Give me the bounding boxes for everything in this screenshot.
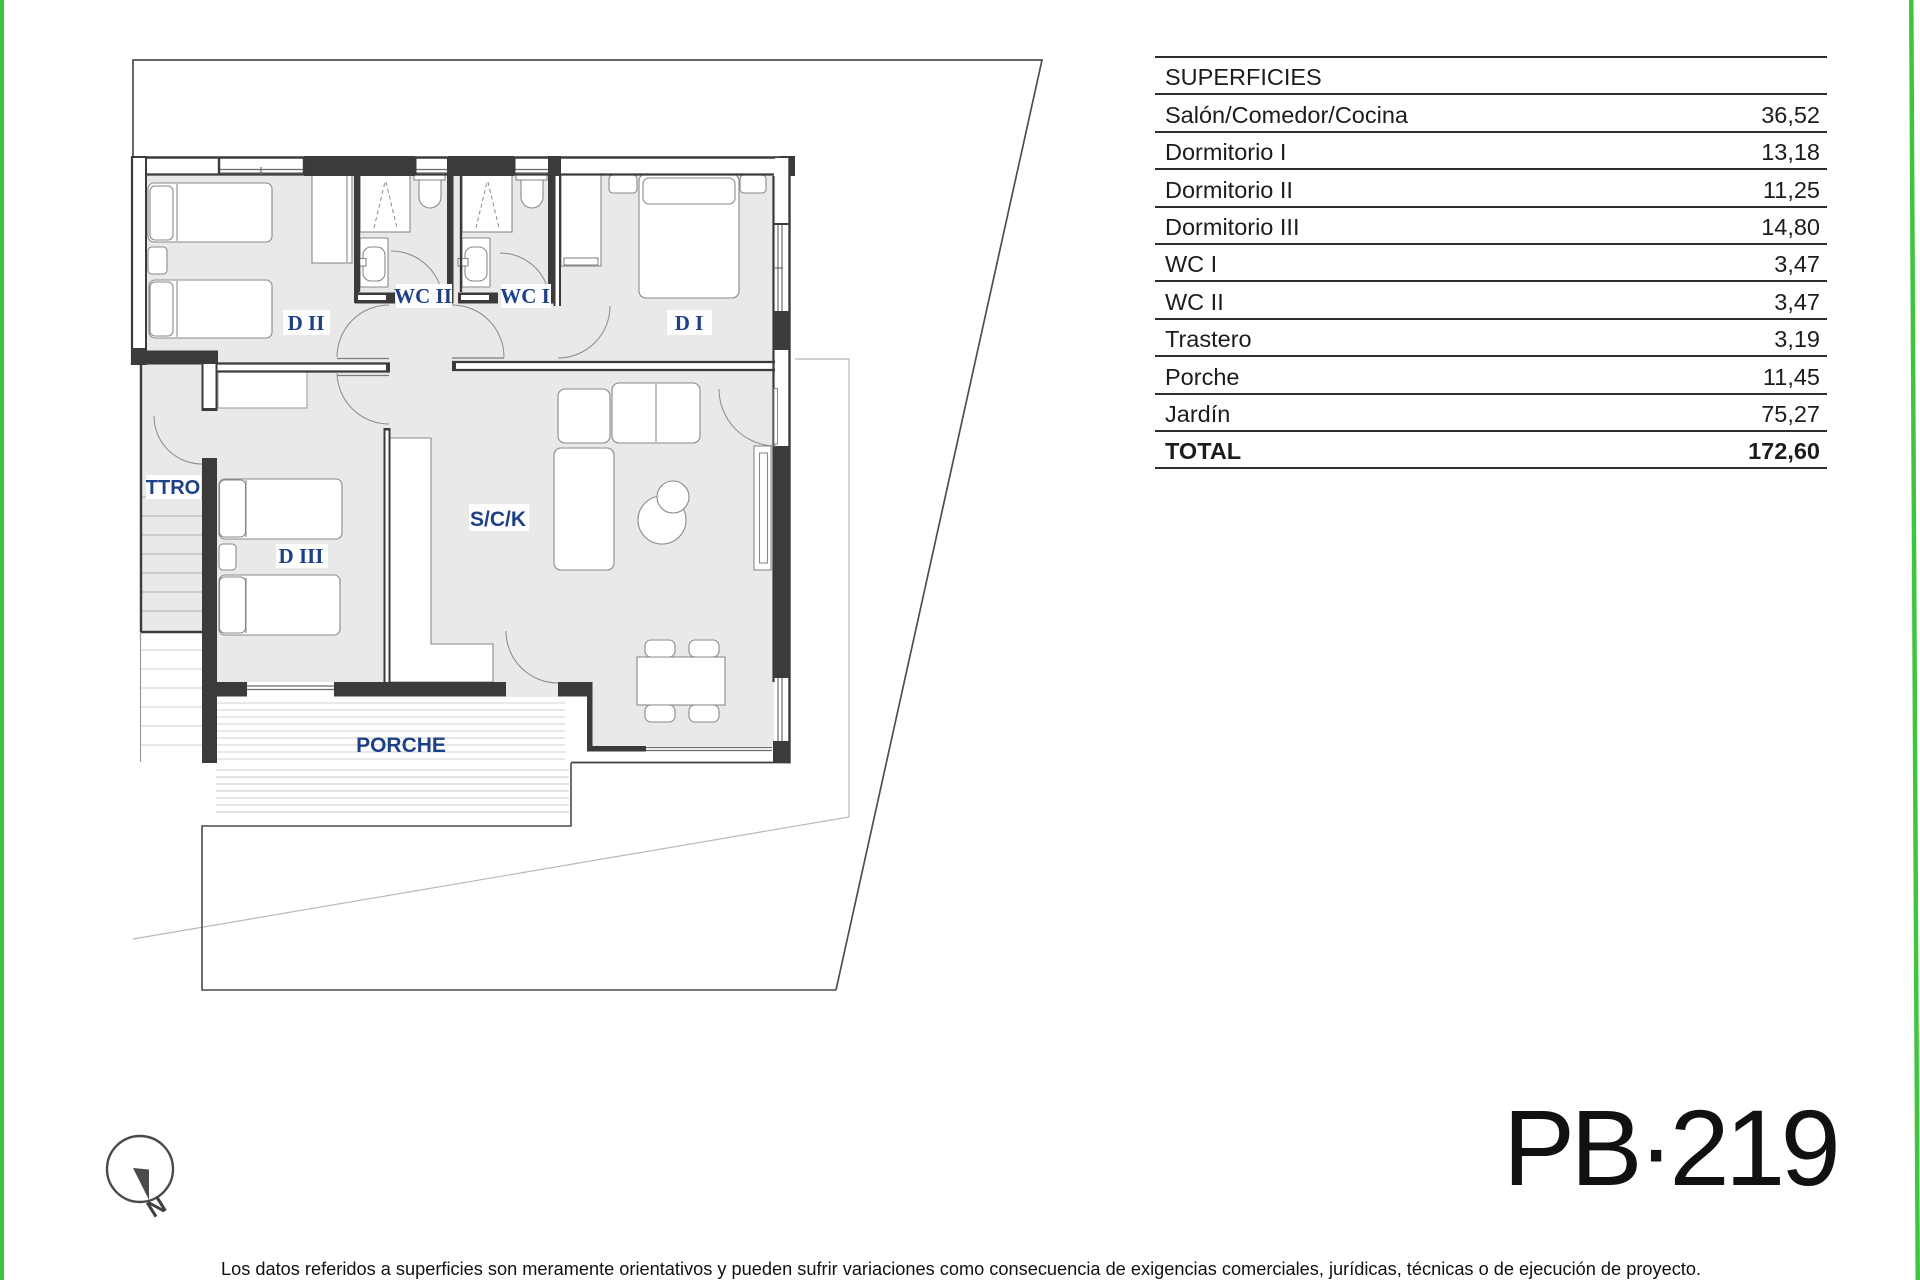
svg-text:WC I: WC I [500,284,550,308]
svg-text:S/C/K: S/C/K [470,508,526,531]
svg-text:D I: D I [675,311,704,335]
svg-text:PORCHE: PORCHE [356,734,446,757]
svg-text:TTRO: TTRO [146,477,200,499]
svg-text:D II: D II [288,311,325,335]
svg-text:WC II: WC II [394,284,452,308]
svg-text:D III: D III [279,544,324,568]
